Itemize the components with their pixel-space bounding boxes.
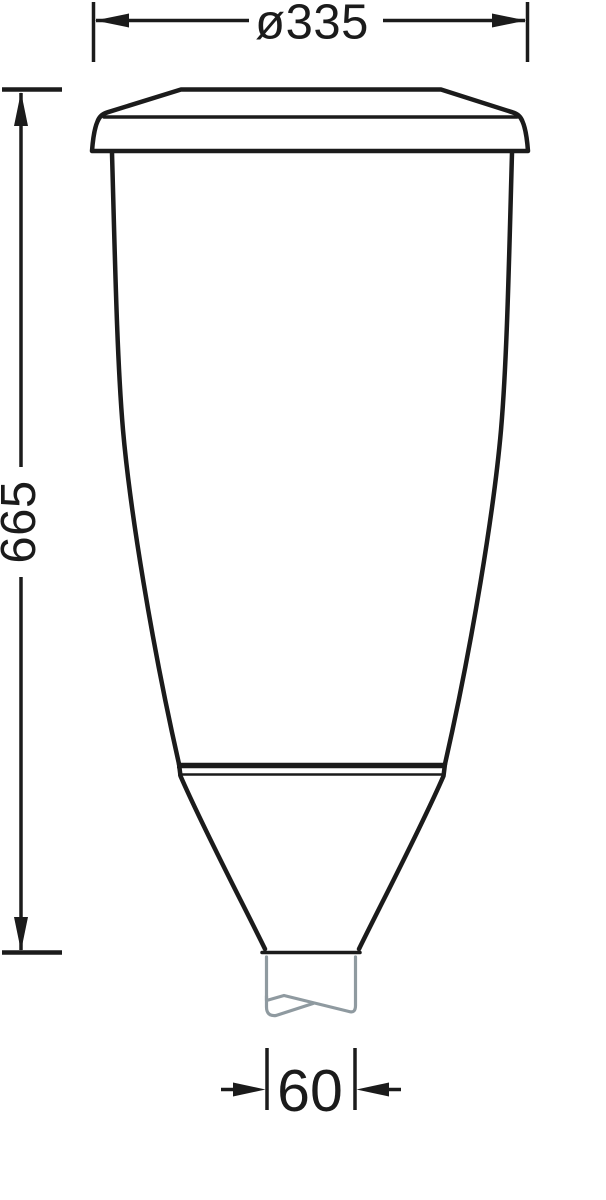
arrowhead-right-icon [492, 14, 526, 28]
technical-drawing: ø335 665 [0, 0, 606, 1200]
pole-spigot [267, 957, 356, 1016]
arrowhead-up-icon [14, 92, 28, 126]
cone-left-outline [179, 764, 265, 949]
luminaire-outline [92, 90, 528, 953]
diameter-label: ø335 [255, 0, 369, 50]
spigot-width-label: 60 [277, 1058, 343, 1124]
cone-right-outline [359, 764, 445, 949]
arrowhead-inward-right-icon [357, 1083, 390, 1097]
arrowhead-inward-left-icon [233, 1083, 266, 1097]
body-left-outline [112, 153, 179, 764]
dimension-spigot-width: 60 [221, 1048, 401, 1124]
dimension-height: 665 [0, 90, 62, 953]
body-right-outline [445, 153, 512, 764]
cap-outline [92, 90, 528, 152]
arrowhead-down-icon [14, 917, 28, 951]
arrowhead-left-icon [95, 14, 129, 28]
dimension-diameter: ø335 [94, 0, 528, 62]
drawing-canvas: ø335 665 [0, 0, 606, 1200]
height-label: 665 [0, 480, 46, 563]
